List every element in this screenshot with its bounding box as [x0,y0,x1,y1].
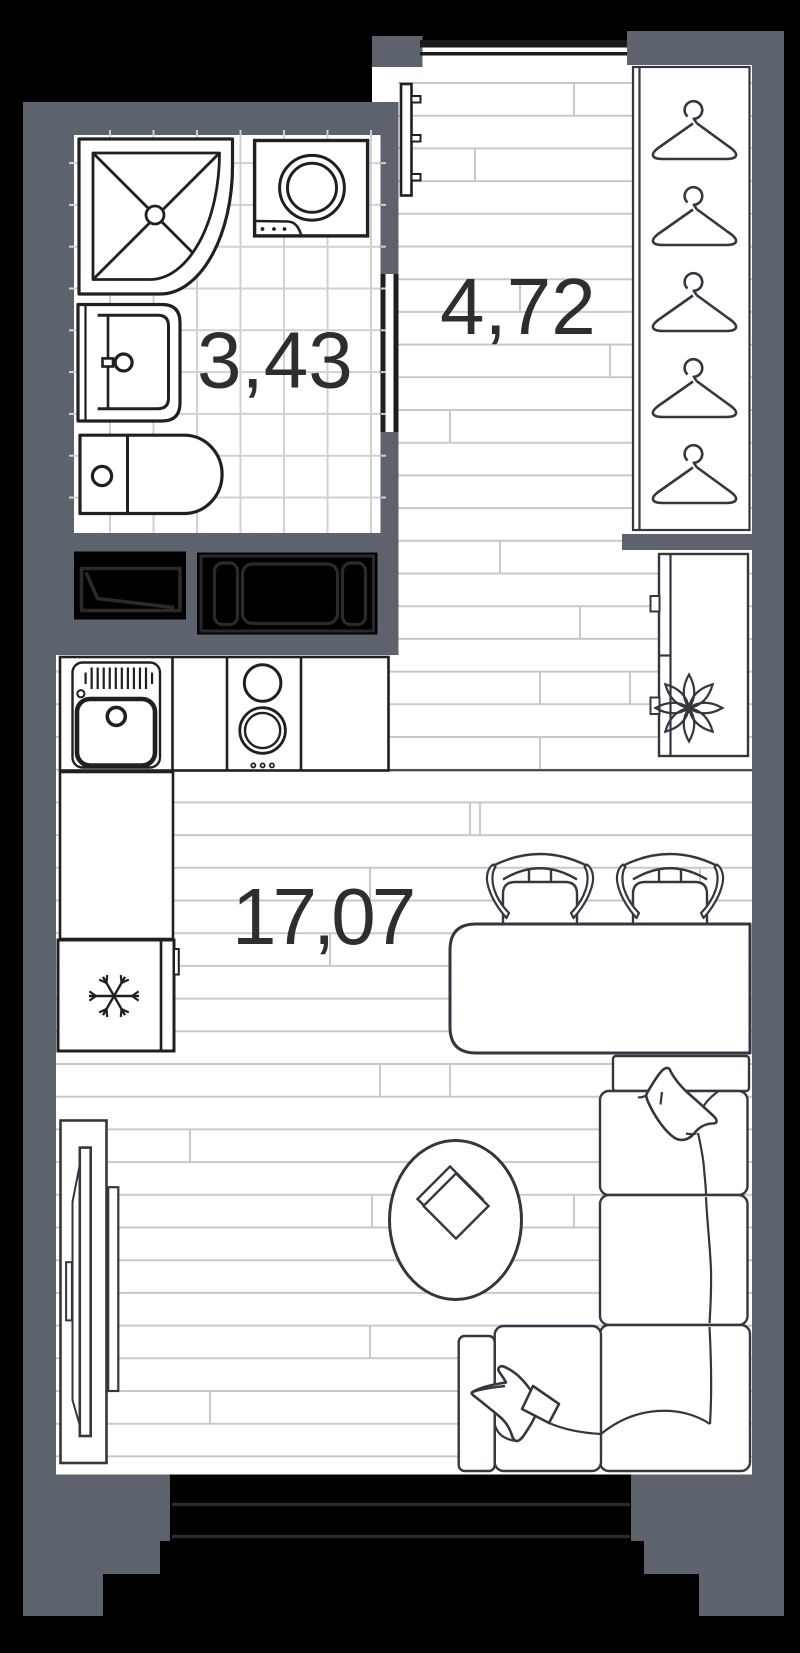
svg-text:3,43: 3,43 [197,316,353,405]
svg-text:4,72: 4,72 [440,262,596,351]
svg-text:17,07: 17,07 [232,872,413,961]
